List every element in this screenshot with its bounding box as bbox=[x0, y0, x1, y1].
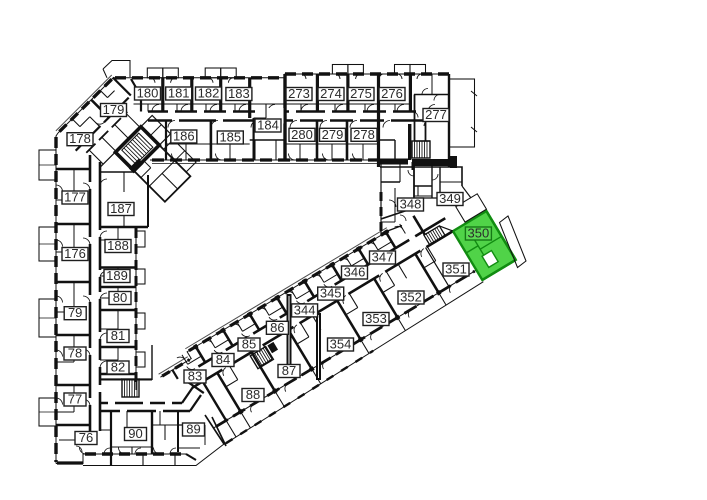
svg-text:353: 353 bbox=[365, 311, 387, 326]
svg-text:189: 189 bbox=[106, 268, 128, 283]
svg-text:352: 352 bbox=[400, 290, 422, 305]
svg-text:276: 276 bbox=[381, 86, 403, 101]
svg-text:348: 348 bbox=[400, 197, 422, 212]
svg-text:275: 275 bbox=[350, 86, 372, 101]
svg-text:273: 273 bbox=[288, 86, 310, 101]
svg-text:178: 178 bbox=[69, 131, 91, 146]
svg-text:351: 351 bbox=[445, 262, 467, 277]
svg-text:179: 179 bbox=[103, 102, 125, 117]
svg-text:82: 82 bbox=[111, 360, 125, 375]
svg-text:183: 183 bbox=[228, 86, 250, 101]
svg-text:177: 177 bbox=[64, 190, 86, 205]
svg-text:274: 274 bbox=[320, 86, 342, 101]
svg-text:84: 84 bbox=[216, 352, 230, 367]
svg-text:349: 349 bbox=[439, 191, 461, 206]
svg-text:350: 350 bbox=[468, 226, 490, 241]
svg-text:77: 77 bbox=[68, 392, 82, 407]
svg-text:280: 280 bbox=[291, 127, 313, 142]
svg-text:90: 90 bbox=[128, 426, 142, 441]
svg-text:176: 176 bbox=[64, 246, 86, 261]
svg-text:279: 279 bbox=[322, 127, 344, 142]
svg-text:185: 185 bbox=[219, 130, 241, 145]
svg-text:80: 80 bbox=[113, 290, 127, 305]
svg-text:79: 79 bbox=[68, 305, 82, 320]
svg-text:188: 188 bbox=[107, 238, 129, 253]
svg-text:277: 277 bbox=[425, 107, 447, 122]
svg-text:88: 88 bbox=[246, 387, 260, 402]
svg-text:346: 346 bbox=[344, 265, 366, 280]
svg-text:85: 85 bbox=[242, 337, 256, 352]
svg-text:76: 76 bbox=[79, 430, 93, 445]
svg-text:182: 182 bbox=[198, 86, 220, 101]
svg-text:89: 89 bbox=[186, 422, 200, 437]
svg-text:81: 81 bbox=[111, 328, 125, 343]
svg-text:180: 180 bbox=[137, 86, 159, 101]
svg-text:83: 83 bbox=[188, 369, 202, 384]
svg-text:86: 86 bbox=[270, 320, 284, 335]
svg-text:347: 347 bbox=[372, 250, 394, 265]
svg-text:186: 186 bbox=[173, 129, 195, 144]
svg-text:78: 78 bbox=[68, 346, 82, 361]
svg-text:278: 278 bbox=[353, 127, 375, 142]
svg-text:181: 181 bbox=[168, 86, 190, 101]
svg-text:87: 87 bbox=[282, 363, 296, 378]
svg-text:345: 345 bbox=[320, 286, 342, 301]
svg-text:187: 187 bbox=[110, 201, 132, 216]
svg-text:184: 184 bbox=[257, 118, 279, 133]
svg-text:354: 354 bbox=[330, 337, 352, 352]
svg-text:344: 344 bbox=[294, 302, 316, 317]
